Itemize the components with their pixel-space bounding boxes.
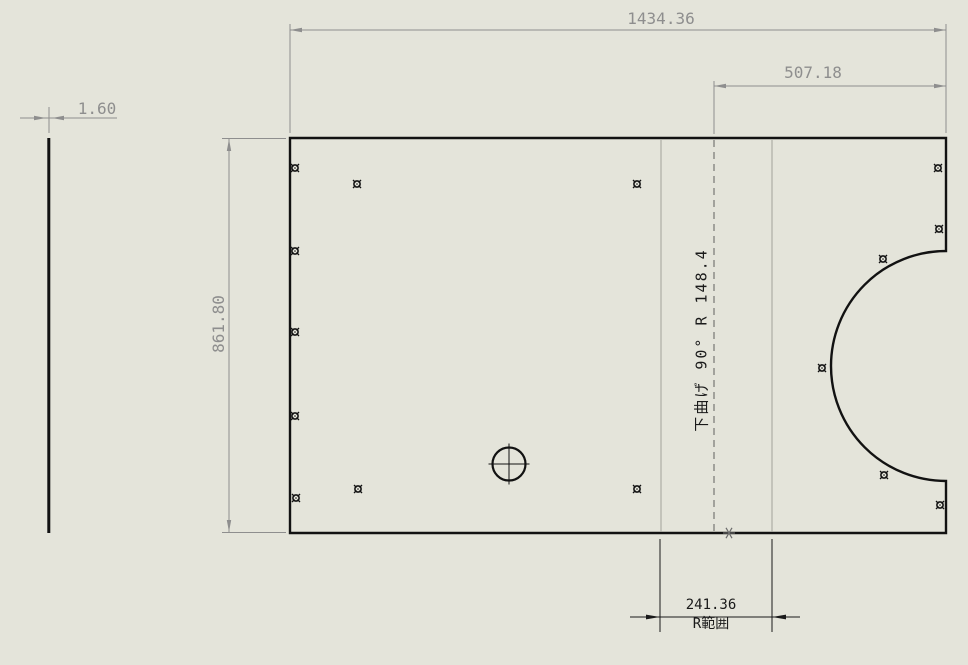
hole-marker[interactable] [291, 412, 299, 420]
hole-marker[interactable] [633, 485, 641, 493]
arrowhead-up-icon [227, 139, 231, 151]
hole-marker[interactable] [291, 164, 299, 172]
hole-marker[interactable] [633, 180, 641, 188]
hole-marker[interactable] [292, 494, 300, 502]
arrowhead-right-icon [934, 28, 946, 32]
hole-with-centermark[interactable] [489, 444, 530, 485]
hole-marker[interactable] [936, 501, 944, 509]
arrowhead-right-icon [934, 84, 946, 88]
arrowhead-left-icon [52, 116, 64, 120]
hole-marker[interactable] [880, 471, 888, 479]
drawing-sheet [0, 0, 968, 665]
dim-overall-height[interactable] [222, 139, 286, 533]
dim-text-overall-width[interactable]: 1434.36 [627, 11, 694, 27]
hole-marker[interactable] [353, 180, 361, 188]
hole-markers [291, 164, 944, 509]
arrowhead-left-icon [290, 28, 302, 32]
dim-text-overall-height[interactable]: 861.80 [211, 295, 227, 353]
hole-marker[interactable] [818, 364, 826, 372]
hole-marker[interactable] [934, 164, 942, 172]
hole-marker[interactable] [354, 485, 362, 493]
dim-overall-width[interactable] [290, 24, 946, 133]
dim-label-r-range[interactable]: R範囲 [693, 617, 729, 631]
hole-marker[interactable] [935, 225, 943, 233]
dim-flange-offset[interactable] [714, 81, 946, 134]
drawing-canvas: 1434.36 507.18 1.60 861.80 241.36 R範囲 下曲… [0, 0, 968, 665]
hole-marker[interactable] [291, 328, 299, 336]
bend-line-asterisk-icon [723, 528, 735, 538]
arrowhead-down-icon [227, 520, 231, 532]
arrowhead-left-icon [714, 84, 726, 88]
arrowhead-right-icon [646, 615, 660, 620]
bend-direction-note[interactable]: 下曲げ 90° R 148.4 [695, 248, 710, 431]
flat-pattern-outline[interactable] [290, 138, 946, 533]
dim-text-flange-offset[interactable]: 507.18 [784, 65, 842, 81]
dim-text-bend-range[interactable]: 241.36 [686, 598, 737, 612]
arrowhead-left-icon [772, 615, 786, 620]
dim-text-thickness[interactable]: 1.60 [78, 101, 117, 117]
arrowhead-right-icon [34, 116, 46, 120]
hole-marker[interactable] [291, 247, 299, 255]
hole-marker[interactable] [879, 255, 887, 263]
